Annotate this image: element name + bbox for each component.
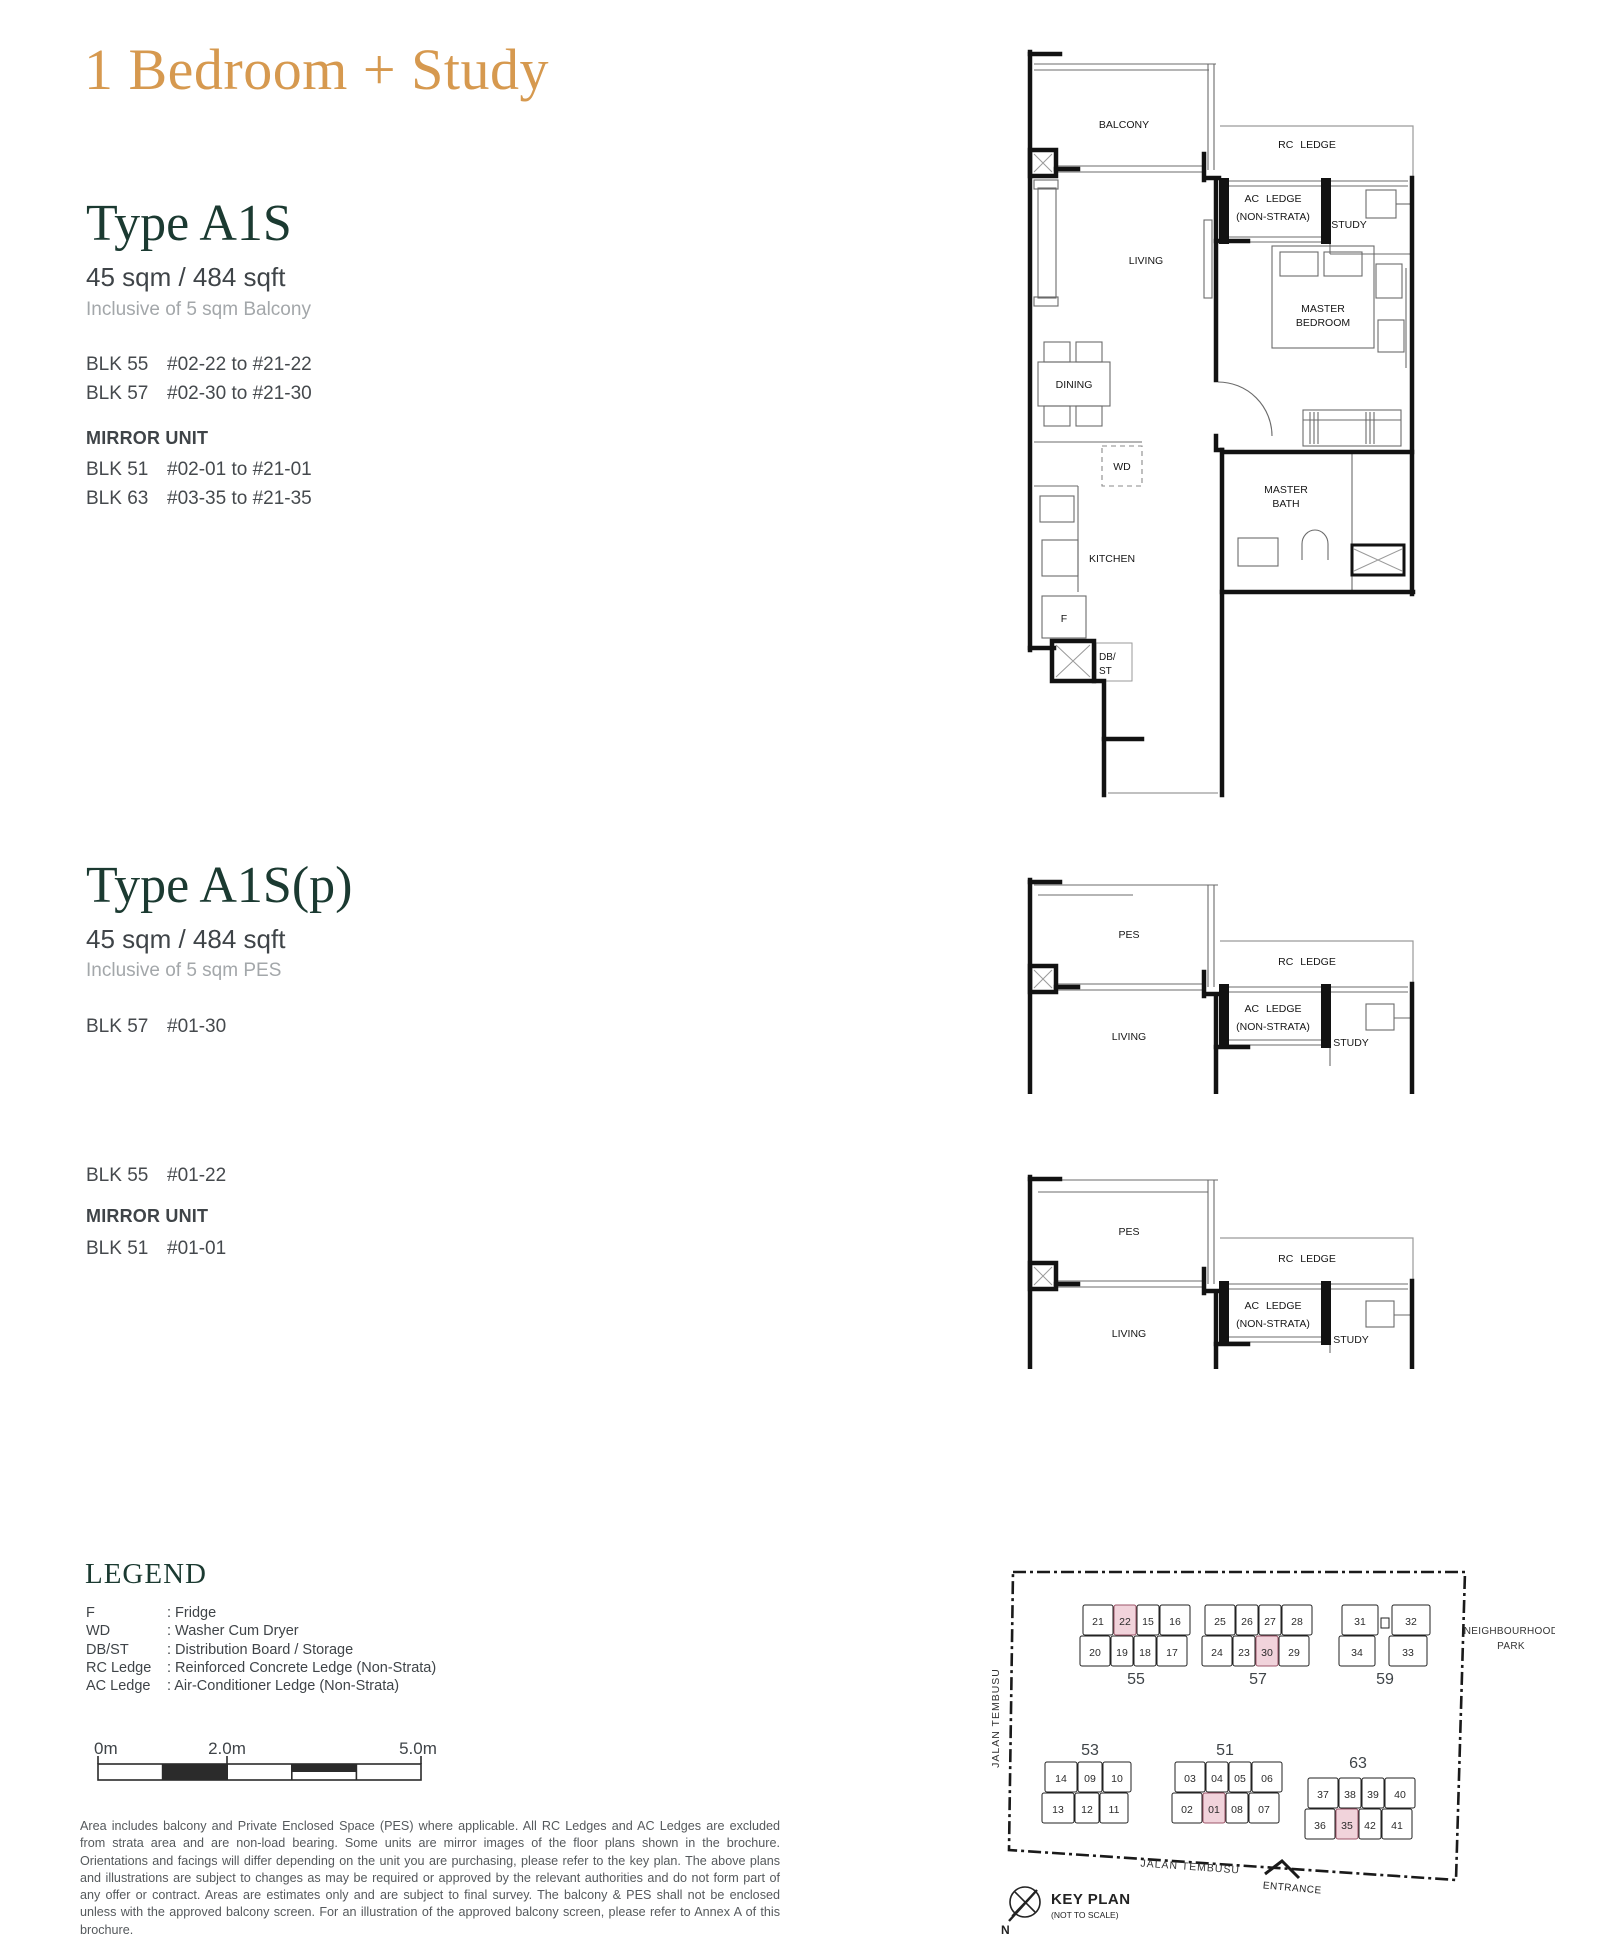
keyplan-unit-number: 23 [1238,1647,1250,1659]
legend-value: : Air-Conditioner Ledge (Non-Strata) [167,1678,399,1694]
block-number: BLK 57 [86,1012,167,1041]
keyplan-unit-number: 35 [1341,1820,1353,1832]
legend-key: DB/ST [86,1641,167,1659]
dbst-label-2: ST [1099,666,1112,677]
keyplan-unit-number: 32 [1405,1616,1417,1628]
rc-ledge-label: RC LEDGE [1278,139,1336,151]
keyplan-block-label-63: 63 [1349,1755,1367,1772]
keyplan-unit-number: 15 [1142,1616,1154,1628]
type-a1s-block-list: BLK 55#02-22 to #21-22 BLK 57#02-30 to #… [86,350,312,408]
ac-ledge-label-1: AC LEDGE [1244,193,1301,205]
keyplan-unit-number: 28 [1291,1616,1303,1628]
rc-ledge-outline [1108,126,1413,793]
keyplan-block-label-53: 53 [1081,1742,1099,1759]
scale-0m: 0m [94,1739,118,1758]
unit-range: #02-01 to #21-01 [167,459,312,480]
type-a1s-area: 45 sqm / 484 sqft [86,262,285,293]
keyplan-unit-number: 08 [1231,1804,1243,1816]
legend-key: WD [86,1622,167,1640]
keyplan-unit-number: 27 [1264,1616,1276,1628]
keyplan-unit-number: 39 [1367,1789,1379,1801]
ac-ledge-label-1: AC LEDGE [1244,1003,1301,1015]
scale-bar: 0m 2.0m 5.0m [58,1736,458,1790]
living-label: LIVING [1112,1031,1146,1043]
unit-range: #01-30 [167,1016,226,1037]
keyplan-unit-number: 09 [1084,1773,1096,1785]
type-a1sp-area: 45 sqm / 484 sqft [86,924,285,955]
shaft-x-marks [1034,1267,1052,1285]
compass-icon [1009,1887,1040,1921]
legend-row: F: Fridge [86,1604,436,1622]
block-row: BLK 55#02-22 to #21-22 [86,350,312,379]
shaft-x-marks [1034,970,1052,988]
road-left-text: JALAN TEMBUSU [990,1668,1002,1768]
block-number: BLK 51 [86,455,167,484]
study-label: STUDY [1333,1334,1369,1346]
legend-key: RC Ledge [86,1659,167,1677]
scale-2m: 2.0m [208,1739,246,1758]
legend-value: : Distribution Board / Storage [167,1642,353,1658]
balcony-label: BALCONY [1099,119,1149,131]
keyplan-unit-number: 21 [1092,1616,1104,1628]
keyplan-unit-number: 24 [1211,1647,1223,1659]
legend-value: : Reinforced Concrete Ledge (Non-Strata) [167,1660,436,1676]
page-title: 1 Bedroom + Study [84,36,549,103]
dining-label: DINING [1056,379,1093,391]
block-number: BLK 55 [86,350,167,379]
block-row: BLK 51#01-01 [86,1234,226,1263]
block-row: BLK 51#02-01 to #21-01 [86,455,312,484]
key-plan: JALAN TEMBUSU JALAN TEMBUSU NEIGHBOURHOO… [795,1550,1555,1946]
keyplan-unit-number: 06 [1261,1773,1273,1785]
keyplan-unit-number: 19 [1116,1647,1128,1659]
legend-key: F [86,1604,167,1622]
legend-row: RC Ledge: Reinforced Concrete Ledge (Non… [86,1659,436,1677]
keyplan-unit-number: 11 [1109,1804,1120,1816]
fridge-label: F [1061,613,1067,625]
keyplan-subtitle: (NOT TO SCALE) [1051,1910,1119,1920]
master-bath-label-2: BATH [1272,498,1299,510]
ac-ledge-label-1: AC LEDGE [1244,1300,1301,1312]
study-label: STUDY [1333,1037,1369,1049]
pes-label: PES [1118,1226,1139,1238]
block59-core [1381,1618,1389,1628]
dbst-labels: DB/ ST [1099,652,1116,677]
legend-row: DB/ST: Distribution Board / Storage [86,1641,436,1659]
keyplan-unit-number: 42 [1364,1820,1376,1832]
keyplan-block-label-57: 57 [1249,1671,1267,1688]
rc-ledge-label: RC LEDGE [1278,1253,1336,1265]
ac-ledge-label-2: (NON-STRATA) [1236,211,1310,223]
keyplan-unit-number: 41 [1391,1820,1403,1832]
scale-bar-graphic [98,1756,421,1780]
keyplan-title: KEY PLAN [1051,1891,1131,1908]
block-number: BLK 57 [86,379,167,408]
master-bedroom-label-2: BEDROOM [1296,317,1350,329]
mirror-unit-heading-2: MIRROR UNIT [86,1206,208,1227]
ac-ledge-label-2: (NON-STRATA) [1236,1021,1310,1033]
keyplan-unit-number: 03 [1184,1773,1196,1785]
keyplan-unit-number: 34 [1351,1647,1363,1659]
block-row: BLK 55#01-22 [86,1161,226,1190]
north-label: N [1001,1923,1010,1937]
type-a1sp-block-list: BLK 57#01-30 [86,1012,226,1041]
master-bath-label-1: MASTER [1264,484,1308,496]
type-a1sp-block-list-2: BLK 55#01-22 [86,1161,226,1190]
keyplan-unit-number: 17 [1166,1647,1178,1659]
pes-label: PES [1118,929,1139,941]
keyplan-unit-number: 22 [1119,1616,1131,1628]
keyplan-blocks: 2122151620191817552526272824233029573132… [1042,1605,1430,1839]
keyplan-unit-number: 18 [1139,1647,1151,1659]
keyplan-unit-number: 40 [1394,1789,1406,1801]
mirror-unit-heading: MIRROR UNIT [86,428,208,449]
disclaimer-text: Area includes balcony and Private Enclos… [80,1818,780,1939]
legend-list: F: Fridge WD: Washer Cum Dryer DB/ST: Di… [86,1604,436,1695]
scale-5m: 5.0m [399,1739,437,1758]
road-bottom-text: JALAN TEMBUSU [1140,1858,1240,1877]
keyplan-unit-number: 05 [1234,1773,1246,1785]
keyplan-unit-number: 26 [1241,1616,1253,1628]
block-row: BLK 57#02-30 to #21-30 [86,379,312,408]
legend-key: AC Ledge [86,1677,167,1695]
road-label-bottom: JALAN TEMBUSU [1140,1858,1240,1877]
legend-row: WD: Washer Cum Dryer [86,1622,436,1640]
keyplan-unit-number: 25 [1214,1616,1226,1628]
keyplan-unit-number: 31 [1354,1616,1366,1628]
walls [1030,52,1413,795]
keyplan-unit-number: 12 [1081,1804,1093,1816]
brochure-page: { "page": { "title": "1 Bedroom + Study"… [0,0,1600,1946]
block-row: BLK 57#01-30 [86,1012,226,1041]
unit-range: #01-22 [167,1165,226,1186]
keyplan-unit-number: 33 [1402,1647,1414,1659]
keyplan-unit-number: 02 [1181,1804,1193,1816]
unit-range: #03-35 to #21-35 [167,488,312,509]
keyplan-unit-number: 37 [1317,1789,1329,1801]
scale-segment-half [292,1764,357,1772]
keyplan-unit-number: 20 [1089,1647,1101,1659]
floor-plan-a1sp-1: PES RC LEDGE AC LEDGE (NON-STRATA) STUDY… [1020,866,1440,1094]
legend-value: : Washer Cum Dryer [167,1623,299,1639]
type-a1s-heading: Type A1S [86,194,292,253]
entrance-text: ENTRANCE [1262,1880,1322,1896]
block-number: BLK 51 [86,1234,167,1263]
keyplan-block-label-55: 55 [1127,1671,1145,1688]
keyplan-unit-number: 38 [1344,1789,1356,1801]
wd-label: WD [1113,461,1131,473]
park-label-1: NEIGHBOURHOOD [1464,1626,1555,1637]
scale-segment-filled [163,1764,228,1780]
dbst-label-1: DB/ [1099,652,1116,663]
block-row: BLK 63#03-35 to #21-35 [86,484,312,513]
unit-range: #02-22 to #21-22 [167,354,312,375]
kitchen-label: KITCHEN [1089,553,1135,565]
ac-ledge-bars [1219,1281,1331,1345]
keyplan-unit-number: 16 [1169,1616,1181,1628]
keyplan-block-label-59: 59 [1376,1671,1394,1688]
type-a1s-inclusive: Inclusive of 5 sqm Balcony [86,299,311,321]
unit-range: #02-30 to #21-30 [167,383,312,404]
unit-range: #01-01 [167,1238,226,1259]
type-a1sp-mirror-list: BLK 51#01-01 [86,1234,226,1263]
block-number: BLK 63 [86,484,167,513]
floor-plan-a1s: BALCONY RC LEDGE AC LEDGE (NON-STRATA) S… [1020,38,1420,800]
keyplan-unit-number: 13 [1052,1804,1064,1816]
living-label: LIVING [1129,255,1163,267]
ac-ledge-label-2: (NON-STRATA) [1236,1318,1310,1330]
keyplan-unit-number: 14 [1055,1773,1067,1785]
park-label-2: PARK [1497,1641,1525,1652]
rc-ledge-label: RC LEDGE [1278,956,1336,968]
keyplan-unit-number: 36 [1314,1820,1326,1832]
ac-ledge-bars [1219,984,1331,1048]
legend-row: AC Ledge: Air-Conditioner Ledge (Non-Str… [86,1677,436,1695]
type-a1sp-heading: Type A1S(p) [86,856,352,915]
keyplan-unit-number: 29 [1288,1647,1300,1659]
keyplan-unit-number: 10 [1111,1773,1123,1785]
study-label: STUDY [1331,219,1367,231]
type-a1sp-inclusive: Inclusive of 5 sqm PES [86,960,281,982]
legend-heading: LEGEND [85,1558,207,1591]
floor-plan-a1sp-2: PES RC LEDGE AC LEDGE (NON-STRATA) STUDY… [1020,1163,1440,1369]
room-labels: BALCONY RC LEDGE AC LEDGE (NON-STRATA) S… [1056,119,1367,625]
keyplan-unit-number: 01 [1208,1804,1220,1816]
road-label-left: JALAN TEMBUSU [990,1668,1002,1768]
legend-value: : Fridge [167,1605,216,1621]
block-number: BLK 55 [86,1161,167,1190]
type-a1s-mirror-list: BLK 51#02-01 to #21-01 BLK 63#03-35 to #… [86,455,312,513]
keyplan-block-label-51: 51 [1216,1742,1234,1759]
master-bedroom-label-1: MASTER [1301,303,1345,315]
keyplan-unit-number: 07 [1258,1804,1270,1816]
keyplan-unit-number: 04 [1211,1773,1223,1785]
living-label: LIVING [1112,1328,1146,1340]
entrance-label: ENTRANCE [1262,1880,1322,1896]
keyplan-unit-number: 30 [1261,1647,1273,1659]
